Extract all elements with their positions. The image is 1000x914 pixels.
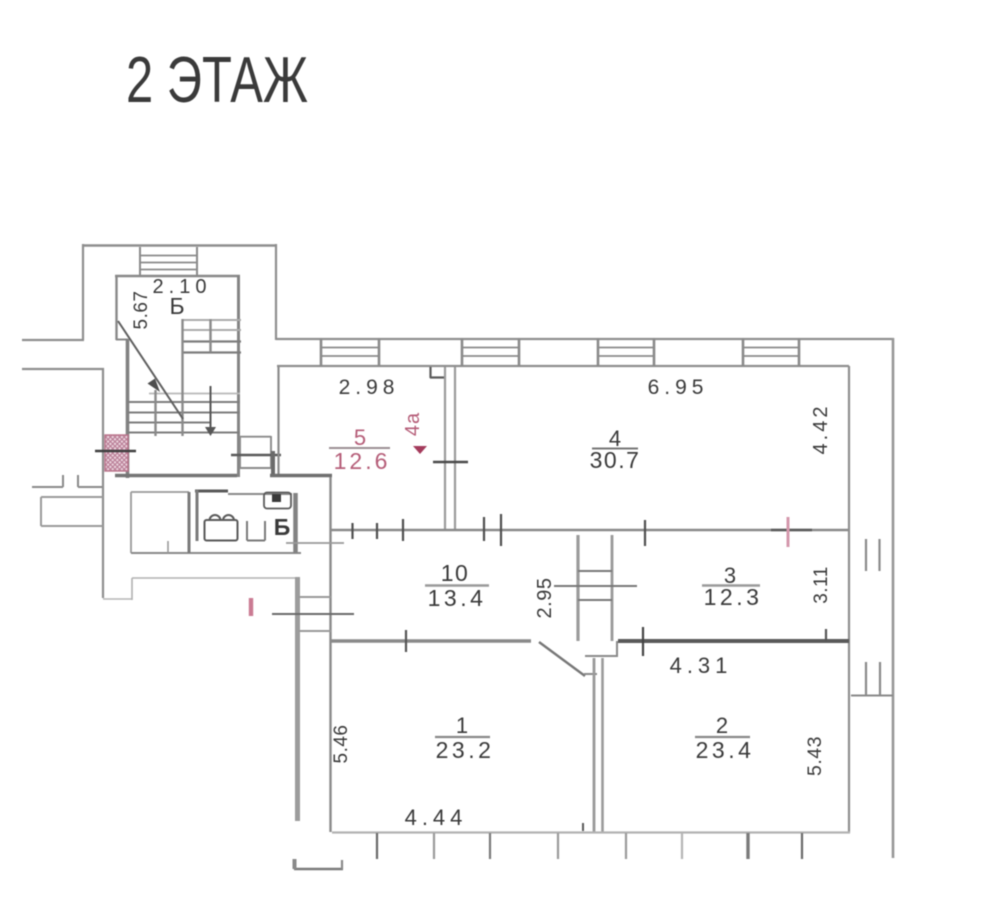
svg-text:4а: 4а	[402, 412, 424, 436]
svg-text:13.4: 13.4	[428, 585, 487, 611]
svg-text:5.46: 5.46	[331, 725, 352, 764]
svg-text:5.67: 5.67	[131, 291, 152, 330]
svg-text:23.4: 23.4	[696, 737, 755, 763]
svg-text:6.95: 6.95	[648, 376, 709, 399]
svg-text:10: 10	[441, 560, 470, 586]
svg-text:12.6: 12.6	[334, 448, 391, 474]
svg-text:Б: Б	[169, 293, 184, 319]
svg-text:4.44: 4.44	[405, 805, 468, 830]
svg-text:3.11: 3.11	[811, 566, 832, 604]
svg-text:30.7: 30.7	[590, 447, 641, 473]
svg-text:4.42: 4.42	[810, 404, 832, 455]
svg-text:5: 5	[354, 425, 366, 450]
svg-text:1: 1	[456, 713, 468, 738]
svg-text:2.95: 2.95	[534, 578, 556, 619]
svg-text:23.2: 23.2	[436, 737, 495, 763]
svg-text:4.31: 4.31	[670, 653, 733, 678]
svg-text:5.43: 5.43	[804, 736, 826, 776]
svg-text:12.3: 12.3	[704, 584, 763, 610]
svg-text:Б: Б	[274, 514, 291, 540]
svg-text:2.98: 2.98	[339, 376, 400, 399]
svg-text:2: 2	[716, 713, 728, 738]
svg-text:2 ЭТАЖ: 2 ЭТАЖ	[126, 43, 308, 116]
